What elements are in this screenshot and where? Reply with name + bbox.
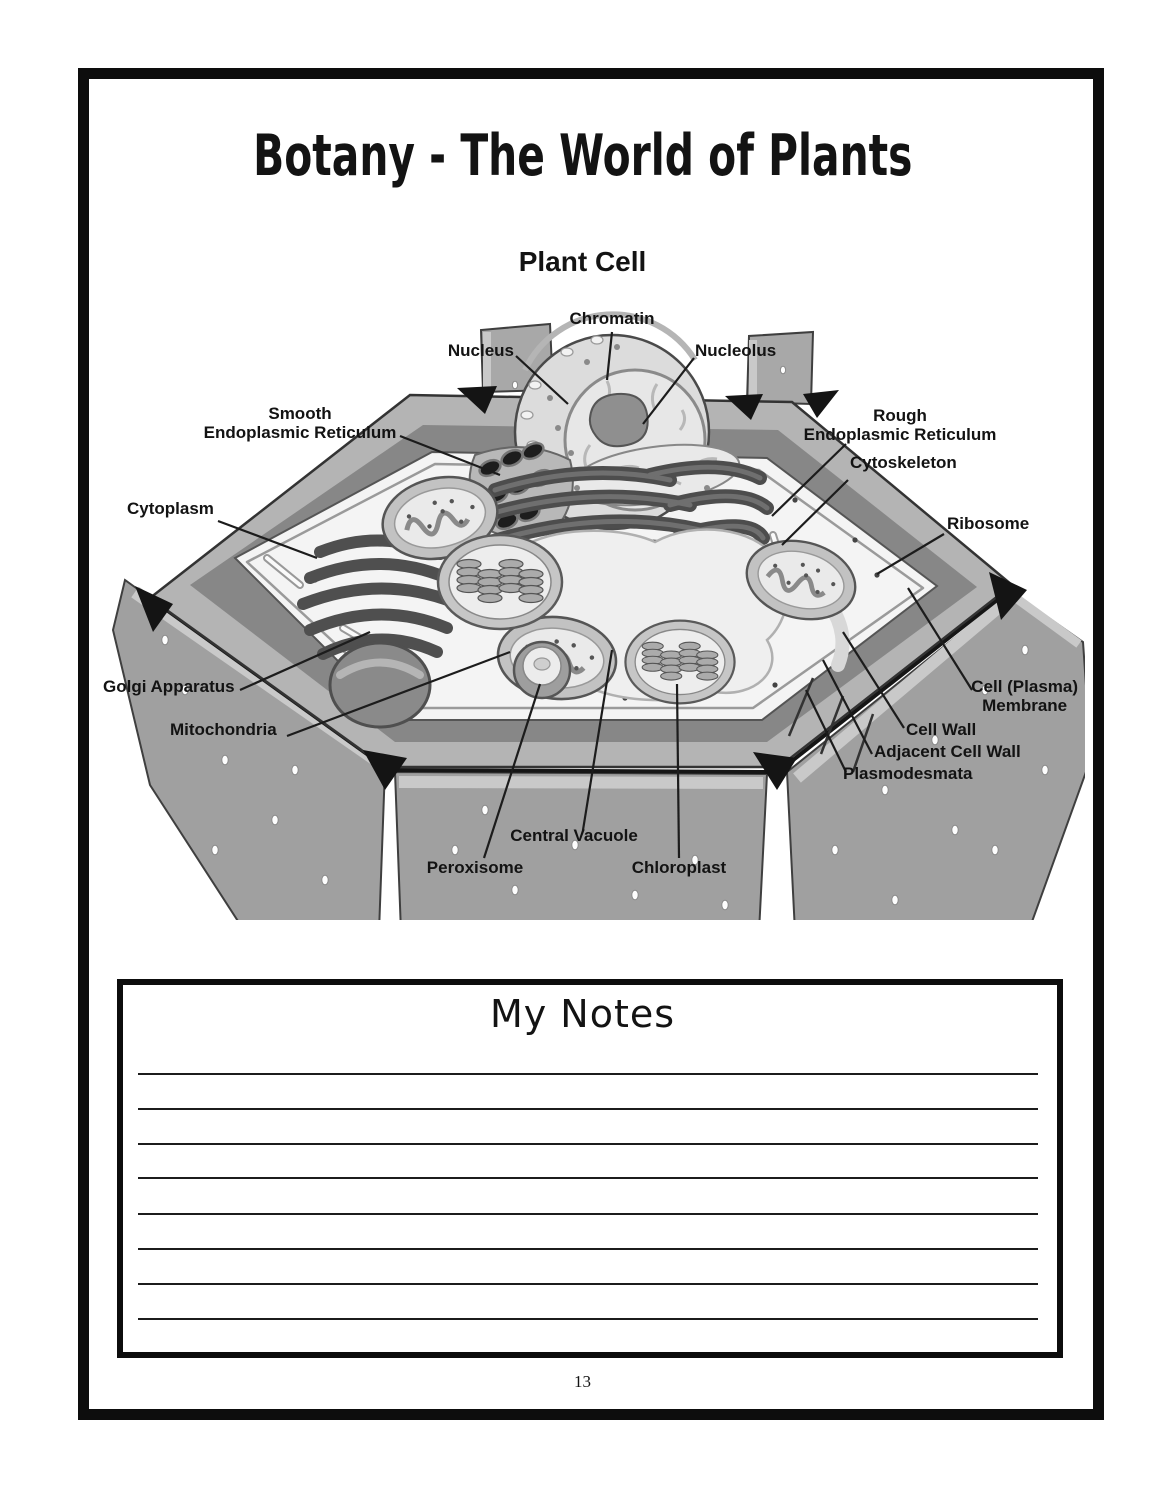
label-smooth-endoplasmic-reticulum: Smooth Endoplasmic Reticulum — [204, 404, 397, 442]
notes-ruled-line — [138, 1177, 1038, 1179]
label-cytoplasm: Cytoplasm — [127, 499, 214, 518]
label-central-vacuole: Central Vacuole — [510, 826, 638, 845]
chloroplast-center — [438, 535, 562, 629]
label-chloroplast: Chloroplast — [632, 858, 726, 877]
notes-ruled-line — [138, 1213, 1038, 1215]
label-peroxisome: Peroxisome — [427, 858, 523, 877]
notes-title: My Notes — [0, 992, 1165, 1036]
label-nucleus: Nucleus — [448, 341, 514, 360]
label-ribosome: Ribosome — [947, 514, 1029, 533]
label-chromatin: Chromatin — [570, 309, 655, 328]
page-number: 13 — [0, 1372, 1165, 1392]
notes-ruled-line — [138, 1143, 1038, 1145]
page-title-text: Botany - The World of Plants — [253, 123, 912, 189]
notes-ruled-line — [138, 1248, 1038, 1250]
peroxisome-shape — [514, 642, 570, 698]
label-adjacent-cell-wall: Adjacent Cell Wall — [874, 742, 1021, 761]
label-cell-plasma-membrane: Cell (Plasma) Membrane — [971, 677, 1078, 715]
label-cytoskeleton: Cytoskeleton — [850, 453, 957, 472]
nucleolus-shape — [590, 394, 648, 446]
notes-ruled-line — [138, 1283, 1038, 1285]
label-rough-endoplasmic-reticulum: Rough Endoplasmic Reticulum — [804, 406, 997, 444]
diagram-title: Plant Cell — [0, 246, 1165, 278]
notes-ruled-line — [138, 1073, 1038, 1075]
notes-ruled-line — [138, 1318, 1038, 1320]
page-title: Botany - The World of Plants — [0, 128, 1165, 184]
label-golgi-apparatus: Golgi Apparatus — [103, 677, 235, 696]
label-plasmodesmata: Plasmodesmata — [843, 764, 972, 783]
label-mitochondria: Mitochondria — [170, 720, 277, 739]
workbook-page: Botany - The World of Plants Plant Cell — [0, 0, 1165, 1504]
label-cell-wall: Cell Wall — [906, 720, 976, 739]
chloroplast-bottom — [625, 621, 734, 704]
notes-ruled-line — [138, 1108, 1038, 1110]
label-nucleolus: Nucleolus — [695, 341, 776, 360]
